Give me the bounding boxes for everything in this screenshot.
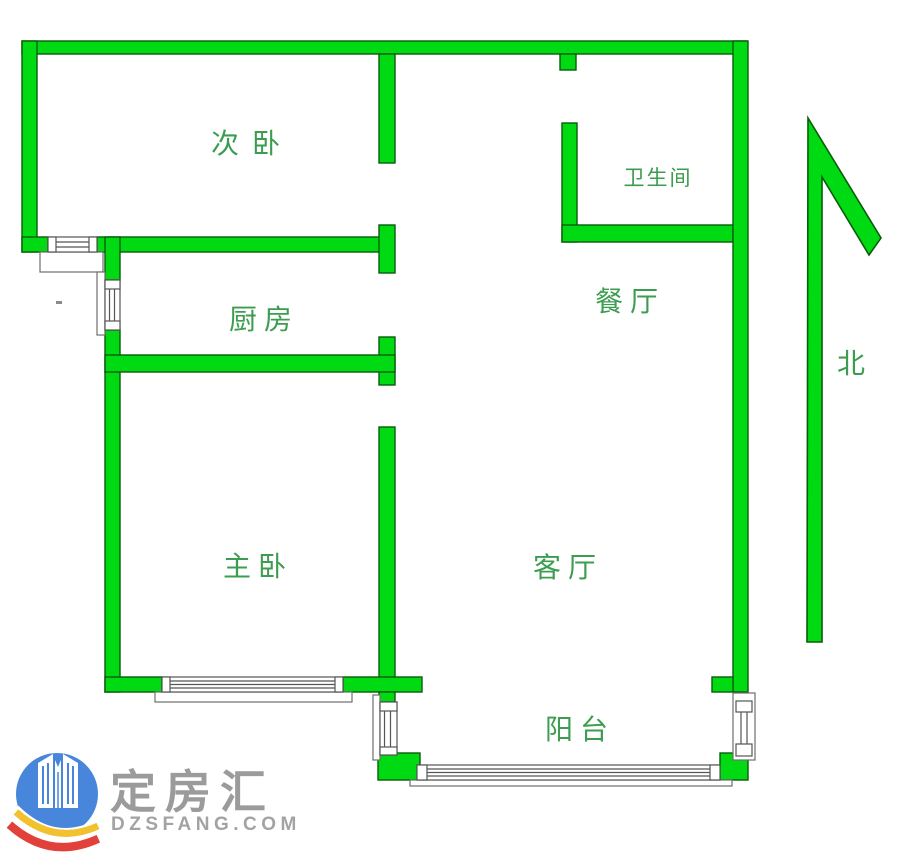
watermark-website: DZSFANG.COM	[111, 814, 301, 836]
room-label-bathroom: 卫生间	[624, 162, 693, 192]
north-label: 北	[837, 342, 865, 382]
room-label-master-bedroom: 主卧	[223, 545, 293, 585]
wall-segment	[22, 41, 747, 54]
window-balcony-left	[373, 695, 397, 760]
room-label-balcony: 阳台	[545, 708, 615, 748]
wall-segment	[105, 677, 162, 692]
floorplan-canvas: 次卧 卫生间 厨房 餐厅 主卧 客厅 阳台 北 定房汇 DZSFANG.COM	[0, 0, 900, 856]
watermark-brand-name: 定房汇	[110, 756, 275, 822]
wall-segment	[378, 753, 420, 780]
floorplan-drawing	[0, 0, 900, 856]
wall-segment	[105, 237, 120, 280]
wall-segment	[22, 41, 37, 252]
walls	[22, 41, 748, 780]
wall-segment	[733, 41, 748, 692]
window-master-bedroom	[155, 677, 352, 702]
room-label-dining-room: 餐厅	[595, 280, 665, 320]
wall-segment	[562, 225, 733, 242]
wall-segment	[562, 123, 577, 242]
wall-segment	[97, 237, 380, 252]
print-artifact-dot	[56, 301, 62, 304]
wall-segment	[560, 54, 576, 70]
window-secondary-bedroom	[40, 237, 103, 272]
room-label-secondary-bedroom: 次卧	[211, 122, 293, 162]
wall-segment	[379, 225, 395, 273]
brand-logo-icon	[10, 753, 100, 846]
wall-segment	[105, 330, 120, 692]
wall-segment	[105, 355, 395, 372]
wall-segment	[379, 54, 395, 163]
window-kitchen	[97, 272, 120, 335]
wall-segment	[343, 677, 422, 692]
wall-segment	[379, 427, 395, 692]
window-balcony-bottom	[410, 765, 732, 786]
wall-segment	[712, 677, 733, 692]
wall-segment	[379, 692, 395, 702]
wall-segment	[22, 237, 48, 252]
room-label-living-room: 客厅	[533, 546, 603, 586]
window-balcony-right	[733, 693, 755, 760]
room-label-kitchen: 厨房	[229, 298, 299, 338]
